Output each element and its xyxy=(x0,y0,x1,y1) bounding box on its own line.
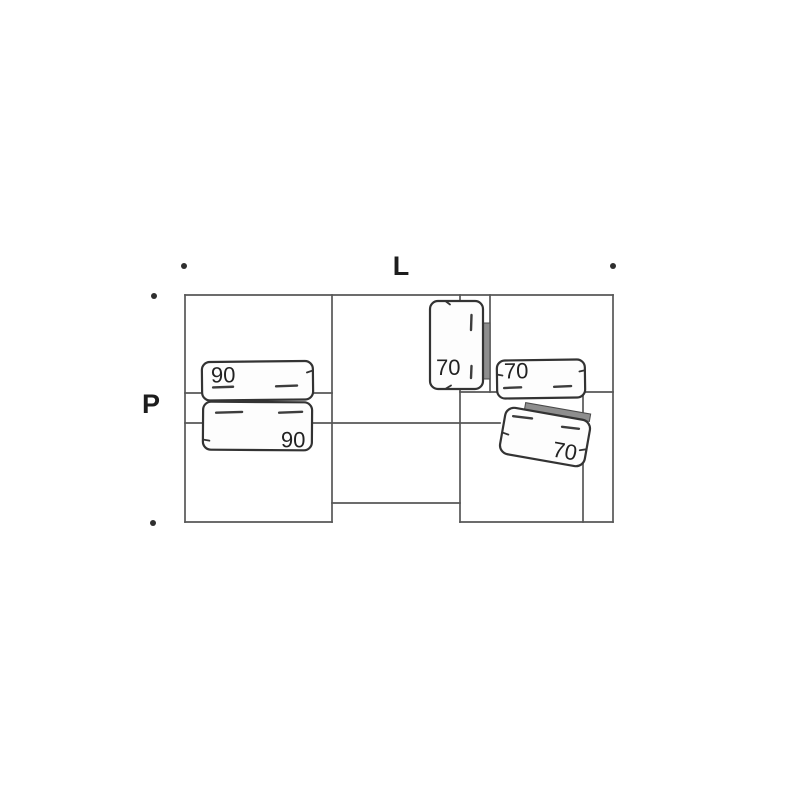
cushion-seam-dash xyxy=(216,412,242,413)
cushion-size-label: 90 xyxy=(211,362,236,387)
cushion-seam-tick xyxy=(203,440,209,441)
cushion-right-tilted: 70 xyxy=(499,399,593,467)
cushion-size-label: 70 xyxy=(504,358,529,383)
cushion-seam-tick xyxy=(497,375,502,376)
cushion-size-label: 70 xyxy=(436,355,460,380)
cushion-left-top: 90 xyxy=(202,361,313,401)
cushion-left-bottom: 90 xyxy=(203,402,312,453)
cushion-size-label: 70 xyxy=(551,437,579,466)
cushion-seam-dash xyxy=(471,315,472,330)
cushion-seam-tick xyxy=(579,370,584,371)
depth-dot-top xyxy=(151,293,157,299)
cushion-middle-vertical: 70 xyxy=(430,301,490,389)
depth-dot-bottom xyxy=(150,520,156,526)
depth-dimension-label: P xyxy=(142,389,160,419)
cushion-right-horizontal: 70 xyxy=(497,357,586,398)
cushion-seam-dash xyxy=(554,386,571,387)
width-dot-left xyxy=(181,263,187,269)
cushion-size-label: 90 xyxy=(281,427,306,452)
furniture-diagram: L P 90 90 70 xyxy=(0,0,800,800)
cushion-seam-dash xyxy=(504,387,521,388)
cushion-seam-dash xyxy=(471,366,472,378)
cushion-seam-dash xyxy=(276,386,297,387)
cushion-seam-dash xyxy=(279,412,302,413)
width-dimension-label: L xyxy=(393,251,410,281)
width-dot-right xyxy=(610,263,616,269)
sofa-plan-svg: L P 90 90 70 xyxy=(0,0,800,800)
